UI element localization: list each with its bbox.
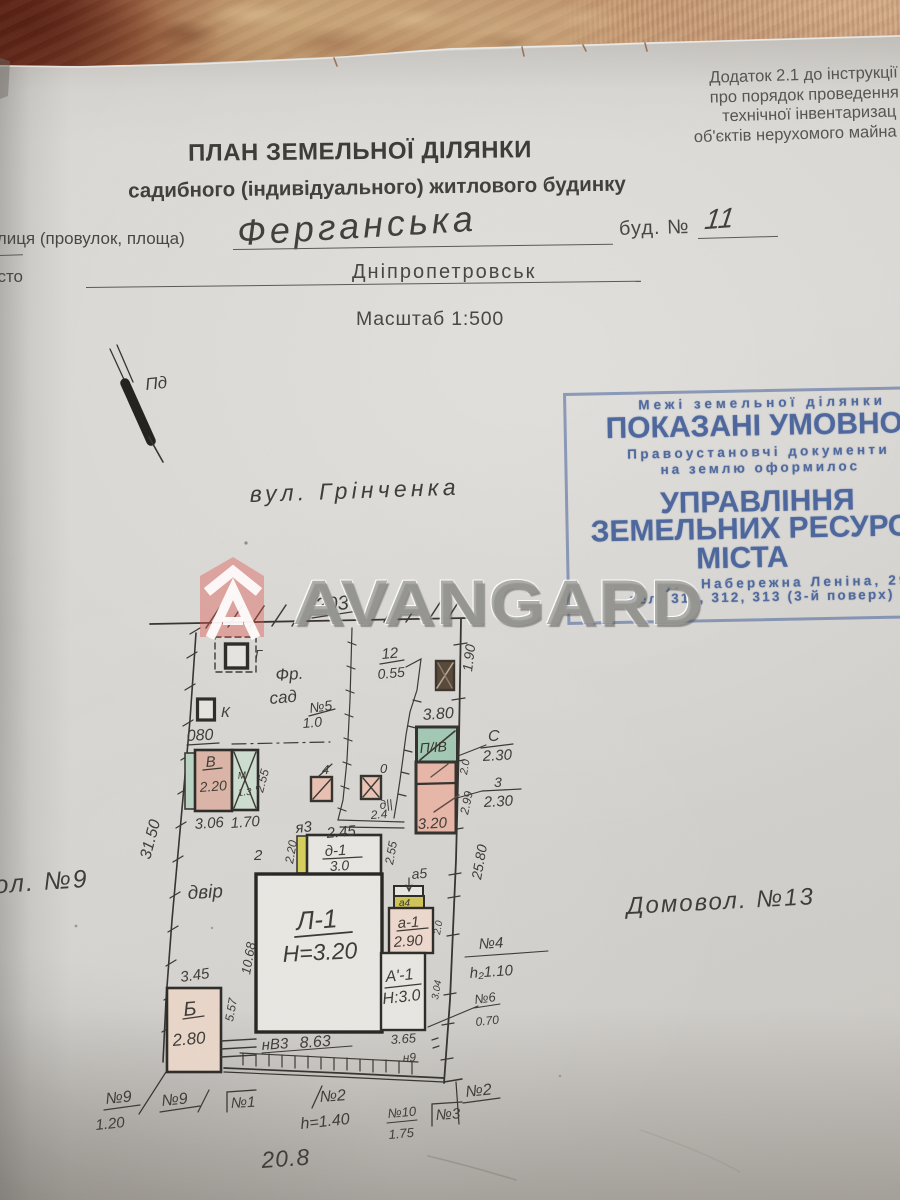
svg-text:2.0: 2.0 [432, 919, 445, 936]
svg-text:3.04: 3.04 [430, 979, 444, 1001]
svg-text:Г: Г [255, 647, 263, 662]
svg-text:0: 0 [380, 761, 388, 776]
svg-text:№4: №4 [478, 934, 504, 953]
svg-text:№3: №3 [435, 1105, 461, 1124]
svg-text:2.90: 2.90 [392, 932, 424, 951]
svg-text:080: 080 [186, 727, 214, 745]
svg-text:№2: №2 [465, 1081, 493, 1101]
svg-text:Б: Б [183, 998, 198, 1021]
svg-text:сад: сад [269, 687, 298, 708]
svg-text:Домовол. №13: Домовол. №13 [623, 883, 816, 920]
svg-text:203: 203 [314, 592, 350, 617]
svg-text:3.06: 3.06 [194, 814, 225, 833]
svg-text:3.20: 3.20 [417, 814, 448, 833]
svg-text:Пд: Пд [144, 373, 168, 394]
svg-text:2.45: 2.45 [325, 822, 357, 842]
svg-text:1.75: 1.75 [388, 1125, 415, 1142]
svg-text:1.20: 1.20 [95, 1114, 126, 1134]
svg-text:h₂1.10: h₂1.10 [469, 962, 514, 982]
svg-text:н9: н9 [402, 1050, 417, 1065]
svg-text:1.0: 1.0 [302, 713, 323, 731]
svg-text:2.30: 2.30 [482, 792, 514, 811]
svg-text:а-1: а-1 [397, 914, 420, 932]
svg-text:2.80: 2.80 [171, 1028, 207, 1050]
svg-text:а4: а4 [399, 898, 411, 909]
svg-text:вул. Грінченка: вул. Грінченка [249, 474, 460, 507]
svg-text:Л-1: Л-1 [293, 903, 338, 936]
svg-text:Н=3.20: Н=3.20 [282, 937, 358, 967]
svg-text:2: 2 [253, 847, 263, 864]
svg-text:1.70: 1.70 [230, 813, 261, 832]
svg-text:А'-1: А'-1 [384, 966, 415, 986]
svg-text:12: 12 [381, 645, 400, 663]
svg-text:0.70: 0.70 [475, 1013, 500, 1029]
svg-text:В: В [205, 753, 216, 771]
svg-text:ол. №9: ол. №9 [0, 865, 90, 900]
svg-text:№9: №9 [105, 1088, 133, 1108]
svg-text:3.0: 3.0 [329, 857, 349, 874]
svg-text:2.4: 2.4 [369, 807, 388, 822]
svg-text:К: К [221, 704, 231, 721]
svg-text:С: С [488, 728, 500, 745]
svg-text:№10: №10 [387, 1103, 418, 1120]
svg-text:25.80: 25.80 [468, 843, 490, 881]
svg-text:2.99: 2.99 [457, 790, 476, 817]
svg-text:8.63: 8.63 [299, 1033, 331, 1052]
svg-text:20.8: 20.8 [260, 1144, 311, 1173]
svg-text:3.80: 3.80 [422, 705, 454, 724]
svg-text:1.3: 1.3 [237, 787, 252, 799]
svg-text:3.45: 3.45 [179, 965, 211, 986]
svg-text:0.55: 0.55 [377, 664, 406, 682]
svg-text:5.57: 5.57 [222, 996, 240, 1023]
svg-text:2.55: 2.55 [382, 840, 400, 867]
svg-text:№6: №6 [473, 989, 497, 1007]
svg-text:№1: №1 [230, 1094, 255, 1112]
svg-text:3.65: 3.65 [390, 1030, 417, 1047]
svg-text:2.0: 2.0 [458, 758, 473, 777]
svg-text:2.30: 2.30 [481, 746, 513, 765]
svg-text:№2: №2 [319, 1087, 346, 1106]
svg-text:3: 3 [494, 774, 502, 790]
svg-text:я3: я3 [294, 818, 314, 837]
svg-text:а5: а5 [411, 865, 428, 882]
svg-text:h=1.40: h=1.40 [300, 1111, 351, 1133]
svg-text:Фр.: Фр. [275, 664, 304, 685]
svg-text:№9: №9 [161, 1090, 189, 1110]
svg-text:31.50: 31.50 [137, 818, 164, 861]
svg-text:4: 4 [322, 762, 329, 777]
svg-text:нВ3: нВ3 [261, 1035, 289, 1054]
svg-text:2.20: 2.20 [198, 777, 228, 795]
svg-text:П/ІВ: П/ІВ [419, 738, 447, 756]
svg-text:двір: двір [187, 881, 223, 904]
svg-text:1.90: 1.90 [459, 643, 478, 672]
svg-text:М: М [237, 770, 247, 782]
